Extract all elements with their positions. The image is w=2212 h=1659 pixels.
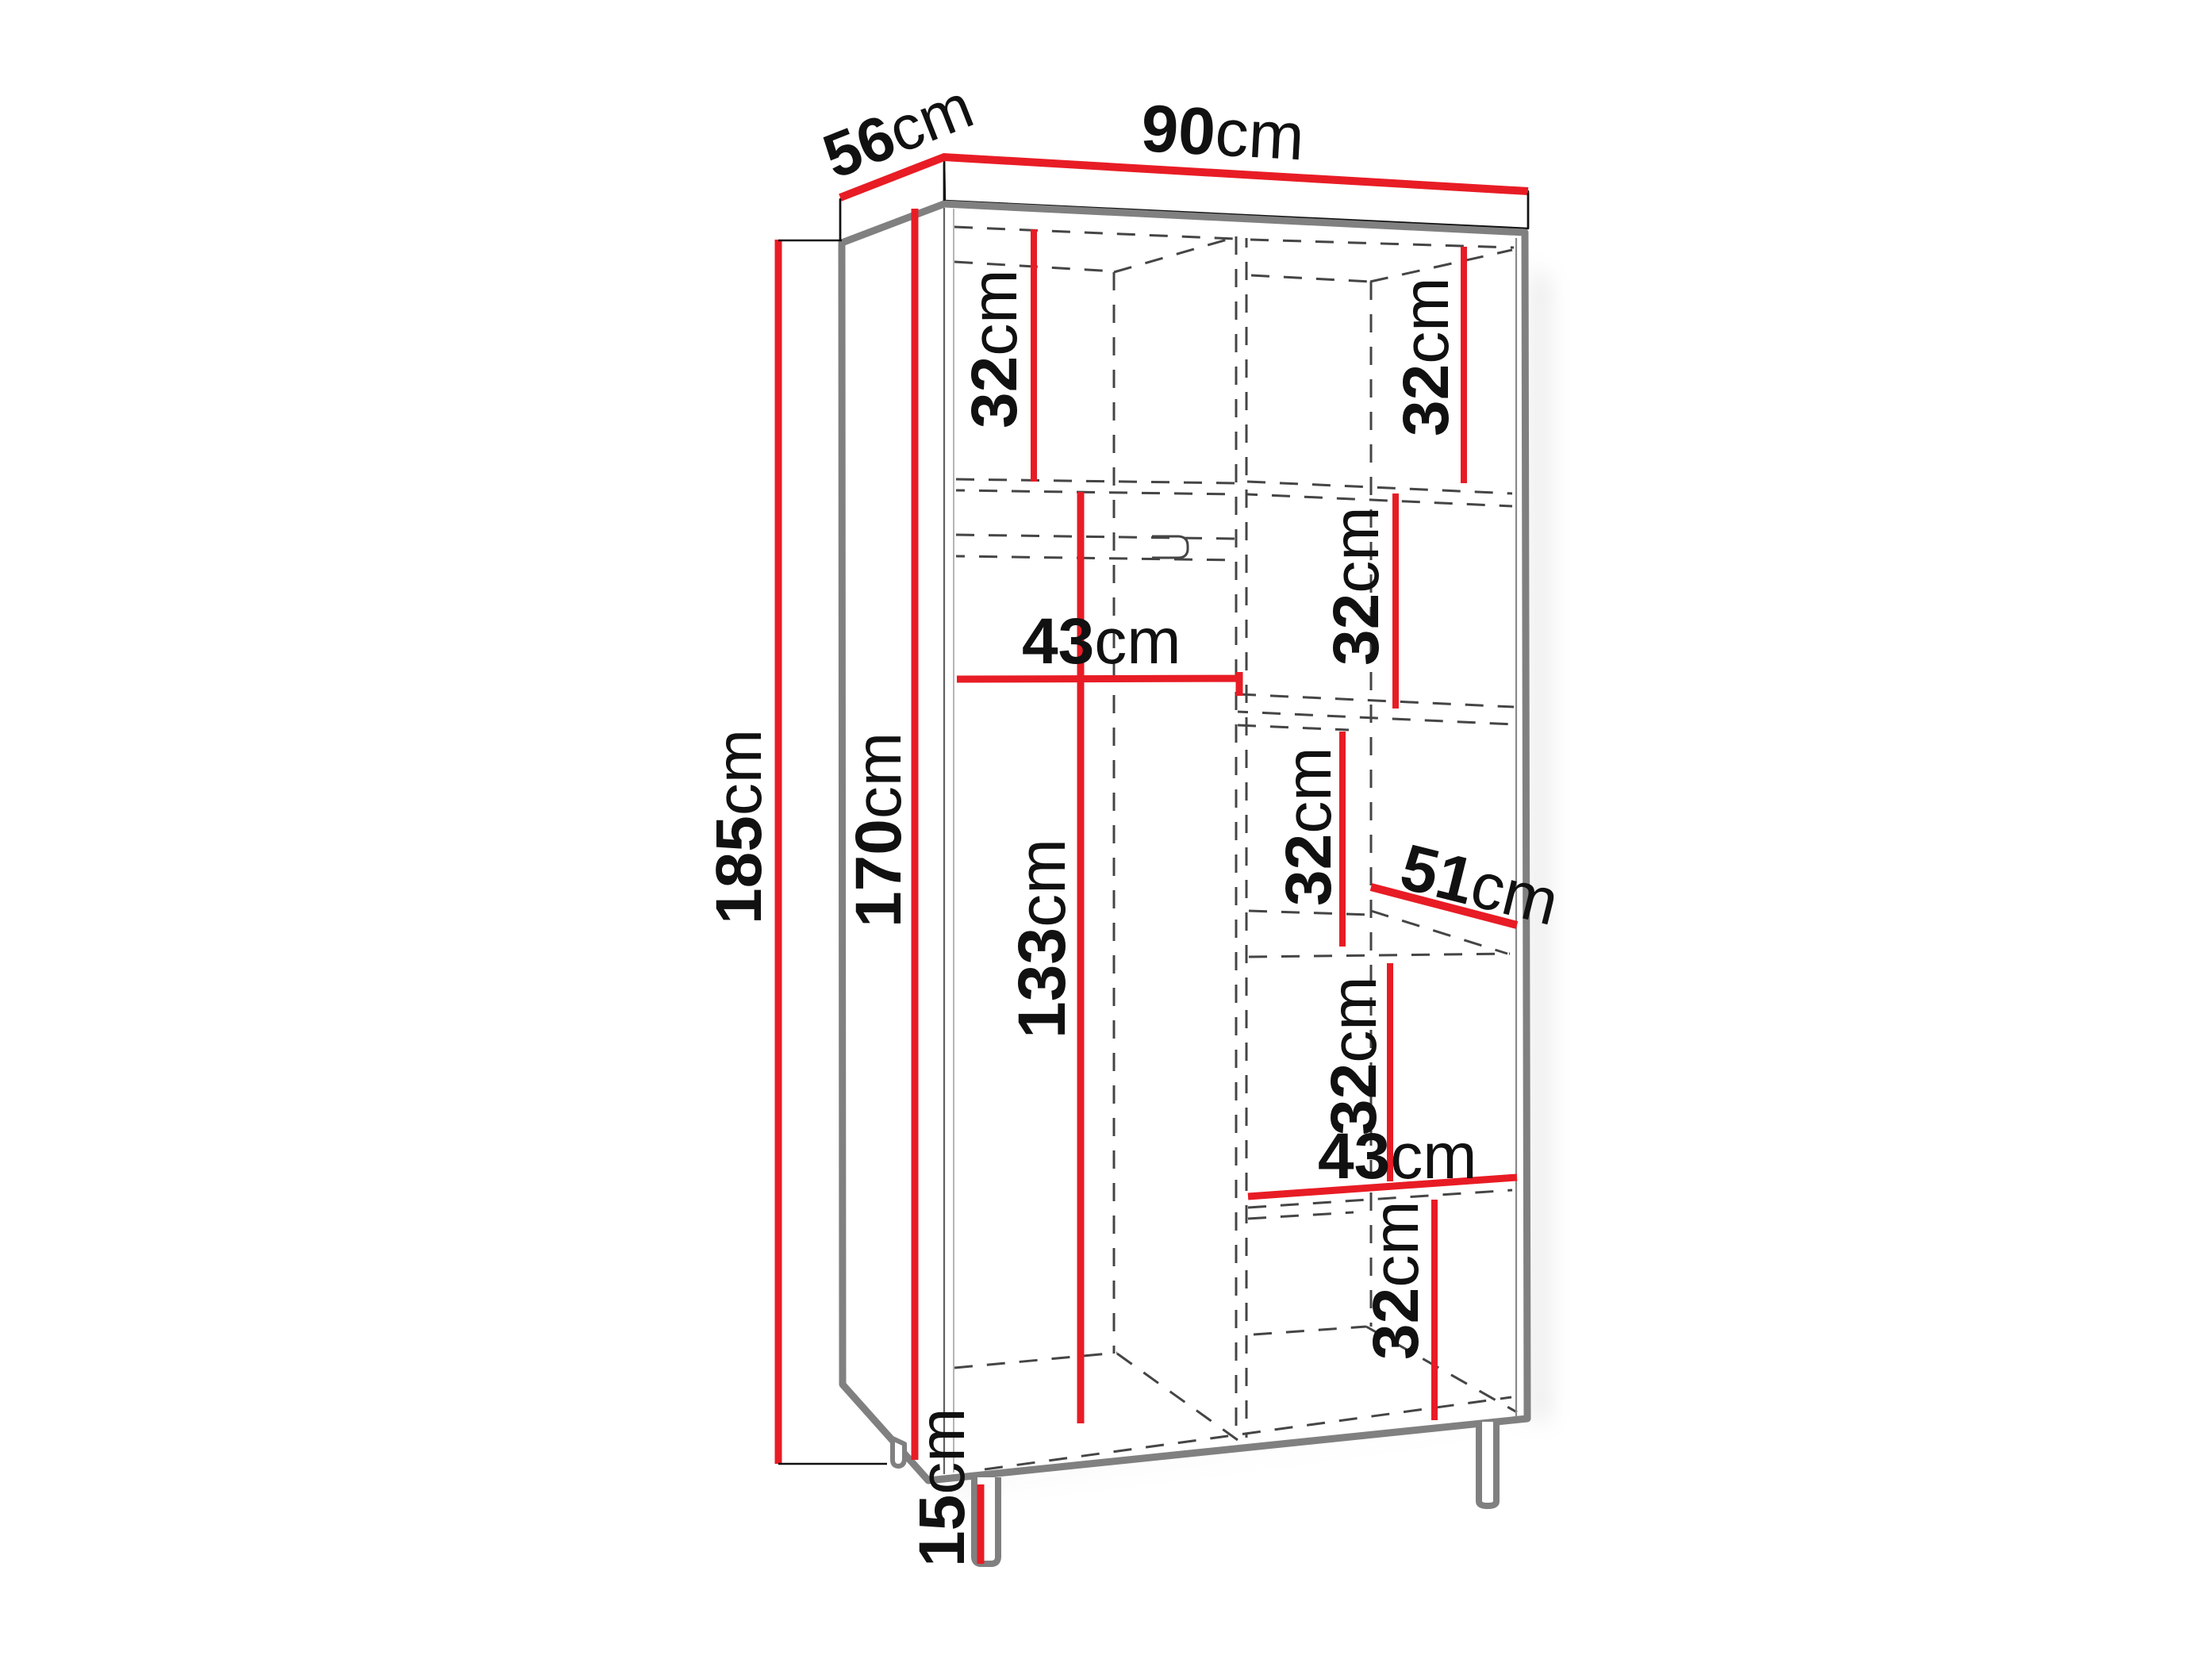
svg-text:32cm: 32cm [958, 269, 1031, 428]
svg-text:133cm: 133cm [1004, 839, 1079, 1039]
svg-text:32cm: 32cm [1273, 747, 1345, 906]
svg-text:170cm: 170cm [843, 732, 915, 927]
svg-text:32cm: 32cm [1318, 976, 1390, 1135]
svg-text:32cm: 32cm [1360, 1200, 1432, 1360]
svg-text:32cm: 32cm [1320, 506, 1392, 666]
svg-text:15cm: 15cm [906, 1407, 978, 1567]
svg-text:32cm: 32cm [1390, 277, 1462, 436]
svg-text:43cm: 43cm [1318, 1120, 1477, 1192]
svg-text:43cm: 43cm [1022, 605, 1181, 678]
svg-text:185cm: 185cm [703, 729, 775, 924]
svg-text:90cm: 90cm [1139, 90, 1306, 174]
